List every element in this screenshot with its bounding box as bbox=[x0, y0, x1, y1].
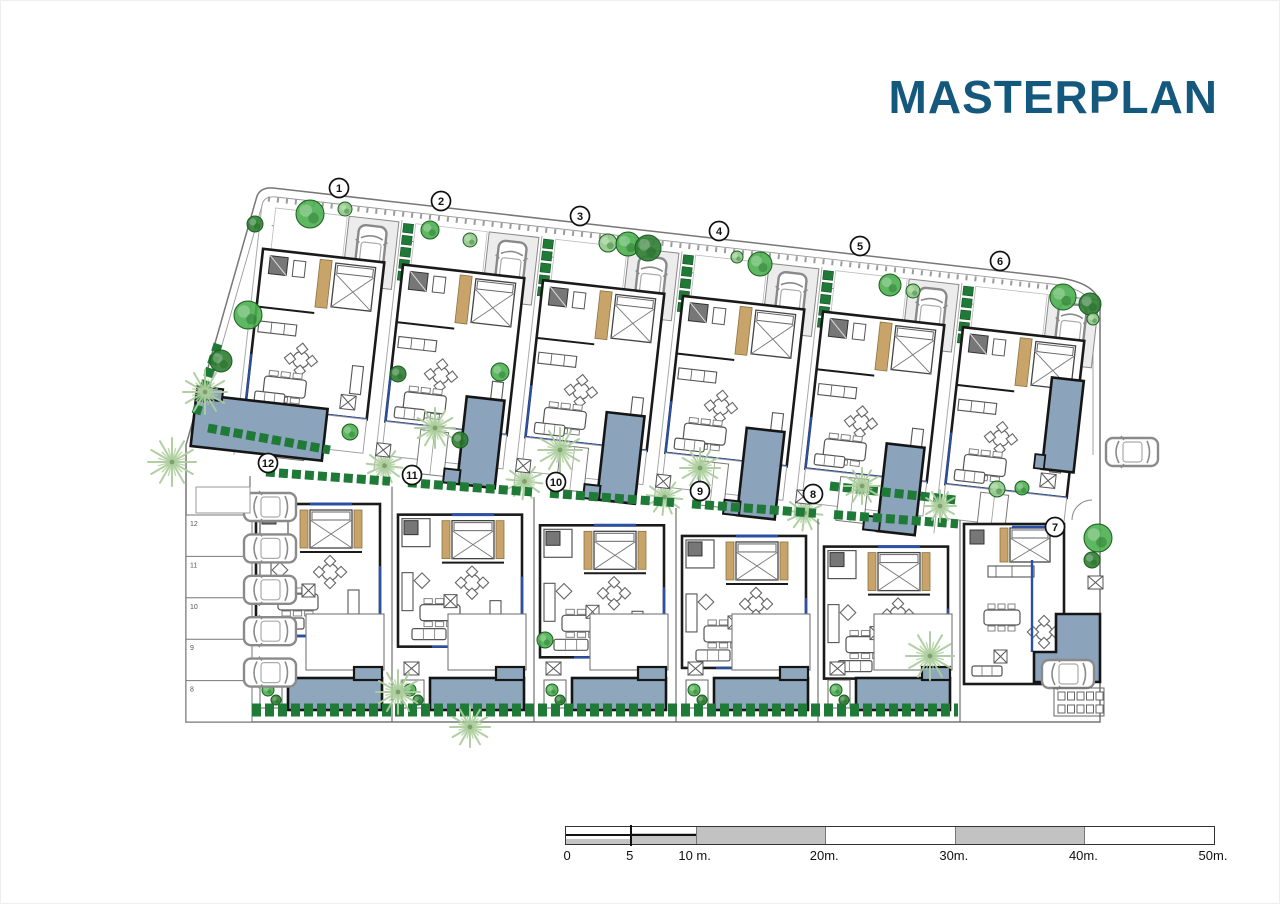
wardrobe bbox=[868, 553, 876, 591]
hedge-strip bbox=[963, 286, 974, 296]
hedge-strip bbox=[681, 267, 692, 277]
scale-bar bbox=[565, 826, 1215, 845]
villa-number: 8 bbox=[810, 489, 816, 501]
villa-number-badge: 7 bbox=[1046, 518, 1065, 537]
pool-step bbox=[1034, 454, 1045, 469]
tree-icon bbox=[247, 216, 263, 232]
planter-box bbox=[404, 662, 419, 675]
empty-bay bbox=[196, 487, 250, 513]
villa-number: 2 bbox=[438, 196, 444, 208]
villa-number: 7 bbox=[1052, 522, 1058, 534]
bed-icon bbox=[878, 553, 920, 591]
shower bbox=[546, 531, 560, 545]
hedge-strip bbox=[400, 247, 411, 257]
tree-icon bbox=[1050, 284, 1076, 310]
wardrobe bbox=[584, 531, 592, 569]
villa-number-badge: 4 bbox=[710, 222, 729, 241]
covered-terrace bbox=[732, 614, 810, 670]
planter-box bbox=[340, 394, 356, 410]
hedge-strip bbox=[683, 255, 694, 265]
sofa-icon bbox=[554, 639, 588, 650]
parking-bay-label: 8 bbox=[190, 687, 194, 694]
bed-icon bbox=[331, 263, 376, 311]
villa-plot-bottom bbox=[392, 483, 532, 722]
tree-icon bbox=[1015, 481, 1029, 495]
scale-bar-segment bbox=[566, 839, 631, 844]
planter-box bbox=[302, 584, 315, 597]
tree-icon bbox=[537, 632, 553, 648]
villa-number: 9 bbox=[697, 486, 703, 498]
planter-box bbox=[656, 474, 671, 488]
scale-tick bbox=[630, 825, 632, 846]
toilet bbox=[432, 276, 446, 293]
villa-number: 12 bbox=[262, 458, 274, 470]
planter-box bbox=[830, 662, 845, 675]
villa-plot-bottom bbox=[818, 515, 958, 722]
shower bbox=[404, 521, 418, 535]
scale-tick bbox=[825, 827, 826, 844]
site-plan-drawing: 12111098123456789101112 bbox=[0, 0, 1280, 904]
tree-icon bbox=[1079, 293, 1101, 315]
hedge-strip bbox=[541, 251, 552, 261]
bed-icon bbox=[452, 521, 494, 559]
sofa-icon bbox=[972, 666, 1002, 676]
villa-number: 5 bbox=[857, 241, 863, 253]
wardrobe bbox=[638, 531, 646, 569]
planter-box bbox=[994, 650, 1007, 663]
hedge-strip bbox=[960, 310, 971, 320]
wardrobe bbox=[442, 521, 450, 559]
planter-box bbox=[516, 458, 531, 472]
wardrobe bbox=[300, 510, 308, 548]
pool-step bbox=[638, 667, 666, 680]
kitchen-counter bbox=[544, 583, 555, 621]
scale-tick bbox=[696, 827, 697, 844]
bed-icon bbox=[891, 326, 936, 374]
car-icon bbox=[244, 491, 296, 523]
covered-terrace bbox=[448, 614, 526, 670]
tree-icon bbox=[1087, 313, 1099, 325]
wardrobe bbox=[726, 542, 734, 580]
sofa-icon bbox=[412, 629, 446, 640]
scale-label: 5 bbox=[626, 848, 633, 863]
villa-number: 1 bbox=[336, 183, 342, 195]
tree-icon bbox=[421, 221, 439, 239]
villa-number: 6 bbox=[997, 256, 1003, 268]
villa-number-badge: 12 bbox=[259, 454, 278, 473]
scale-bar-labels: 0510 m.20m.30m.40m.50m. bbox=[565, 848, 1265, 868]
car-icon bbox=[1106, 436, 1158, 468]
villa-number: 3 bbox=[577, 211, 583, 223]
villa-number-badge: 6 bbox=[991, 252, 1010, 271]
villa-number: 11 bbox=[406, 470, 418, 482]
tree-icon bbox=[390, 366, 406, 382]
parking-bay-label: 11 bbox=[190, 562, 197, 569]
scale-bar-segment bbox=[955, 827, 1085, 844]
villa-number: 10 bbox=[550, 477, 562, 489]
villa-number-badge: 3 bbox=[571, 207, 590, 226]
toilet bbox=[572, 292, 586, 309]
car-icon bbox=[244, 657, 296, 689]
planter-box bbox=[444, 595, 457, 608]
plan-root: 12111098123456789101112 bbox=[148, 179, 1158, 748]
tree-icon bbox=[338, 202, 352, 216]
tree-icon bbox=[830, 684, 842, 696]
tree-icon bbox=[906, 284, 920, 298]
covered-terrace bbox=[590, 614, 668, 670]
tree-icon bbox=[879, 274, 901, 296]
toilet bbox=[712, 307, 726, 324]
tree-icon bbox=[599, 234, 617, 252]
planter-box bbox=[1088, 576, 1103, 589]
kitchen-counter bbox=[402, 573, 413, 611]
planter-box bbox=[1040, 473, 1056, 489]
masterplan-page: MASTERPLAN 12111098123456789101112 0510 … bbox=[0, 0, 1280, 904]
tree-icon bbox=[1084, 552, 1100, 568]
tree-icon bbox=[989, 481, 1005, 497]
dining-table-icon bbox=[984, 604, 1020, 631]
bed-icon bbox=[594, 531, 636, 569]
pool-step bbox=[354, 667, 382, 680]
wardrobe bbox=[496, 521, 504, 559]
wardrobe bbox=[354, 510, 362, 548]
bed-icon bbox=[611, 294, 656, 342]
car-icon bbox=[1042, 658, 1094, 690]
kitchen-counter bbox=[828, 605, 839, 643]
hedge-strip bbox=[820, 294, 831, 304]
tree-icon bbox=[1084, 524, 1112, 552]
villa-number-badge: 10 bbox=[547, 473, 566, 492]
hedge-strip bbox=[823, 270, 834, 280]
sofa-icon bbox=[696, 650, 730, 661]
villa-plot-bottom bbox=[676, 504, 816, 722]
shower bbox=[688, 542, 702, 556]
tree-icon bbox=[296, 200, 324, 228]
wardrobe bbox=[780, 542, 788, 580]
bed-icon bbox=[736, 542, 778, 580]
tree-icon bbox=[635, 235, 661, 261]
tree-icon bbox=[546, 684, 558, 696]
villa-number-badge: 5 bbox=[851, 237, 870, 256]
bed-icon bbox=[471, 279, 516, 327]
hedge-strip bbox=[403, 223, 414, 233]
villa-plot-bottom bbox=[534, 493, 674, 722]
shower bbox=[830, 553, 844, 567]
bed-icon bbox=[751, 310, 796, 358]
villa-number-badge: 8 bbox=[804, 485, 823, 504]
tree-icon bbox=[463, 233, 477, 247]
scale-tick bbox=[955, 827, 956, 844]
bed-icon bbox=[1010, 528, 1050, 562]
scale-label: 20m. bbox=[810, 848, 839, 863]
hedge-strip bbox=[961, 298, 972, 308]
house-plan bbox=[245, 249, 384, 420]
tree-icon bbox=[491, 363, 509, 381]
car-icon bbox=[244, 615, 296, 647]
swimming-pool bbox=[597, 412, 645, 504]
hedge-strip bbox=[680, 279, 691, 289]
scale-label: 50m. bbox=[1199, 848, 1228, 863]
toilet bbox=[852, 323, 866, 340]
planter-box bbox=[546, 662, 561, 675]
villa-number-badge: 1 bbox=[330, 179, 349, 198]
tree-icon bbox=[731, 251, 743, 263]
hedge-strip bbox=[540, 263, 551, 273]
tree-icon bbox=[452, 432, 468, 448]
car-icon bbox=[244, 532, 296, 564]
parking-bay-label: 9 bbox=[190, 645, 194, 652]
bed-icon bbox=[310, 510, 352, 548]
tree-icon bbox=[748, 252, 772, 276]
planter-box bbox=[376, 443, 391, 457]
scale-label: 0 bbox=[564, 848, 571, 863]
hedge-strip bbox=[543, 239, 554, 249]
scale-bar-segment bbox=[696, 827, 826, 844]
scale-label: 30m. bbox=[939, 848, 968, 863]
parking-bay-label: 10 bbox=[190, 604, 198, 611]
pool-step bbox=[496, 667, 524, 680]
toilet bbox=[292, 260, 306, 277]
villa-number-badge: 9 bbox=[691, 482, 710, 501]
tree-icon bbox=[342, 424, 358, 440]
scale-tick bbox=[1084, 827, 1085, 844]
villa-number-badge: 11 bbox=[403, 466, 422, 485]
pool-step bbox=[780, 667, 808, 680]
planter-box bbox=[688, 662, 703, 675]
hedge-strip bbox=[401, 235, 412, 245]
scale-label: 10 m. bbox=[678, 848, 711, 863]
kitchen-counter bbox=[686, 594, 697, 632]
villa-number-badge: 2 bbox=[432, 192, 451, 211]
scale-label: 40m. bbox=[1069, 848, 1098, 863]
car-icon bbox=[244, 574, 296, 606]
parking-bay-label: 12 bbox=[190, 521, 198, 528]
covered-terrace bbox=[306, 614, 384, 670]
villa-number: 4 bbox=[716, 226, 723, 238]
toilet bbox=[992, 339, 1006, 356]
wardrobe bbox=[922, 553, 930, 591]
tree-icon bbox=[210, 350, 232, 372]
hedge-strip bbox=[821, 282, 832, 292]
tree-icon bbox=[234, 301, 262, 329]
tree-icon bbox=[688, 684, 700, 696]
